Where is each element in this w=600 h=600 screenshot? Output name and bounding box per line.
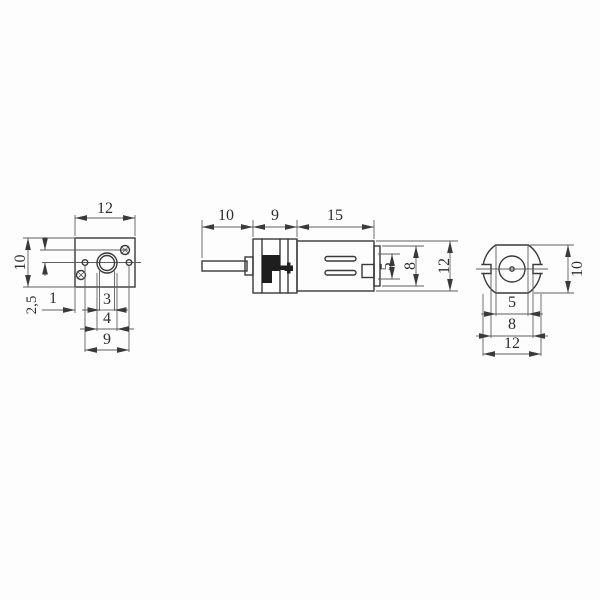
dim-side-motor-length: 15	[327, 207, 343, 224]
technical-drawing: 12 10 2,5 1	[0, 0, 600, 600]
dim-rear-notch-spacing: 8	[508, 316, 516, 333]
side-view: 10 9 15 5 8 12	[202, 207, 458, 293]
rear-boss-dimension: 5	[481, 294, 543, 314]
dim-side-gearbox-length: 9	[271, 207, 279, 224]
dim-front-offset: 2,5	[24, 296, 40, 315]
dim-front-bushing-dia: 4	[103, 310, 111, 327]
front-hole-spacing-dimension: 9	[85, 331, 129, 350]
dim-rear-boss-dia: 5	[508, 294, 516, 311]
rear-notch-dimension: 8	[476, 316, 548, 336]
front-offset-dimension: 2,5	[24, 237, 45, 314]
dim-front-height: 10	[12, 255, 29, 271]
dim-rear-width: 12	[504, 335, 520, 352]
front-width-dimension: 12	[75, 200, 135, 236]
dim-front-edge: 1	[49, 290, 57, 307]
dim-front-shaft-dia: 3	[103, 291, 111, 308]
dim-side-5: 5	[378, 263, 395, 271]
vent-slot-top	[325, 257, 356, 262]
shaft-collar	[245, 257, 253, 275]
output-shaft	[202, 261, 247, 271]
rear-view: 5 8 12 10	[476, 245, 586, 356]
side-height-dimensions: 5 8 12	[376, 241, 458, 291]
rear-width-dimension: 12	[483, 335, 541, 354]
front-view: 12 10 2,5 1	[12, 200, 141, 352]
dim-side-8: 8	[402, 262, 419, 270]
vent-slot-bottom	[325, 271, 356, 276]
dim-side-12: 12	[436, 258, 453, 274]
terminal-tab	[362, 265, 374, 278]
shaft-hole	[100, 256, 115, 271]
front-bushing-dimension: 4	[80, 310, 134, 329]
dim-side-shaft-length: 10	[218, 207, 234, 224]
dim-rear-height: 10	[569, 261, 586, 277]
screw-bottom-left	[77, 271, 86, 280]
dim-front-width: 12	[97, 200, 113, 217]
dim-front-hole-spacing: 9	[103, 331, 111, 348]
